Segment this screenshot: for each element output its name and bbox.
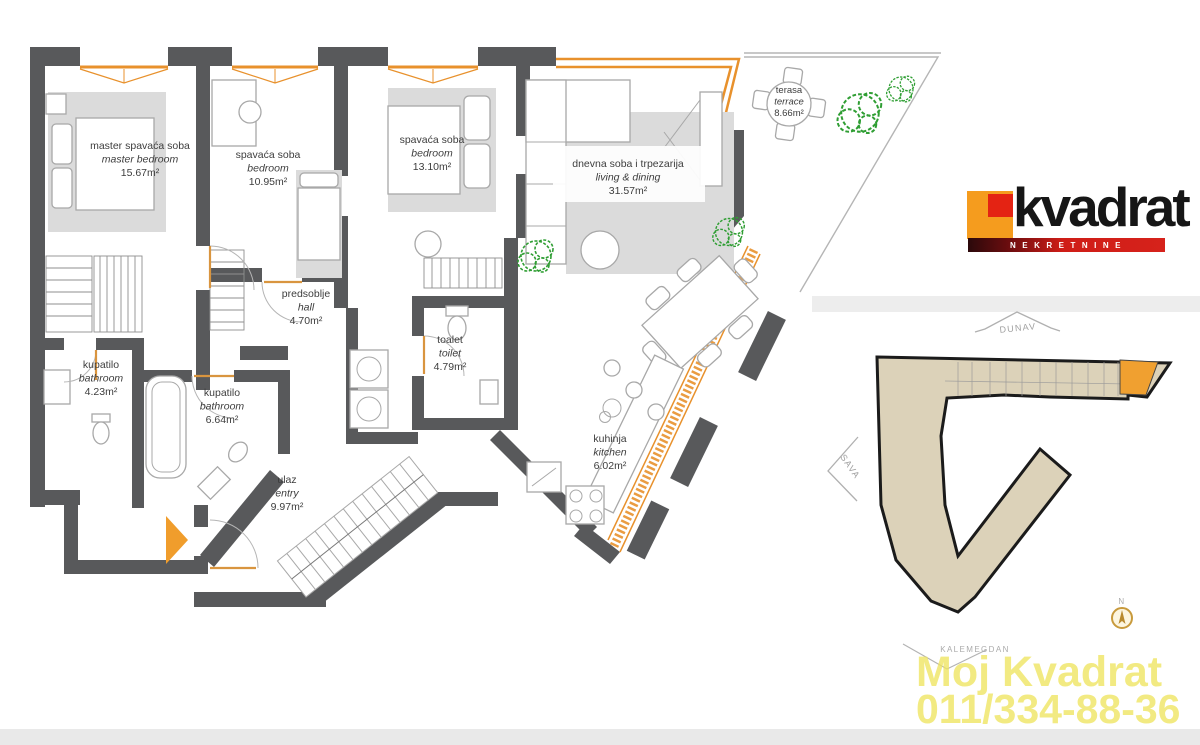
room-area: 15.67m² [121, 167, 160, 179]
background-band-top [812, 296, 1200, 312]
room-name-sr: master spavaća soba [90, 140, 190, 152]
room-area: 8.66m² [774, 108, 804, 119]
room-name-sr: spavaća soba [236, 149, 301, 161]
room-label-bathroom-2: kupatilo bathroom 6.64m² [200, 387, 245, 426]
room-label-terrace: terasa terrace 8.66m² [774, 85, 804, 119]
room-area: 13.10m² [413, 161, 452, 173]
room-area: 4.23m² [85, 386, 118, 398]
room-area: 6.64m² [206, 414, 239, 426]
room-area: 4.70m² [290, 315, 323, 327]
room-label-hall: predsoblje hall 4.70m² [282, 288, 331, 327]
sava-label: SAVA [838, 452, 862, 480]
master-closet [46, 256, 142, 332]
room-label-toilet: toalet toilet 4.79m² [434, 334, 467, 373]
room-area: 31.57m² [609, 185, 648, 197]
building-footprint [877, 357, 1170, 612]
room-name-en: bathroom [79, 373, 124, 385]
site-plan: DUNAV SAVA KALEMEGDAN N [828, 312, 1170, 669]
room-area: 9.97m² [271, 501, 304, 513]
furniture [44, 63, 830, 524]
room-area: 4.79m² [434, 361, 467, 373]
room-name-en: kitchen [593, 447, 626, 459]
sava-direction: SAVA [828, 437, 862, 501]
compass-n-label: N [1118, 597, 1125, 606]
room-name-sr: kupatilo [204, 387, 240, 399]
logo-tagline-bar: NEKRETNINE [968, 238, 1165, 252]
plant-icon [838, 93, 882, 133]
plant-icon [887, 76, 915, 102]
dunav-label: DUNAV [999, 321, 1037, 335]
room-name-en: living & dining [596, 172, 661, 184]
room-name-sr: kuhinja [593, 433, 626, 445]
room-area: 6.02m² [594, 460, 627, 472]
watermark-line2: 011/334-88-36 [916, 686, 1180, 732]
logo-brand-text: kvadrat [1013, 180, 1188, 235]
compass-icon: N [1112, 597, 1132, 628]
dunav-direction: DUNAV [975, 312, 1060, 335]
room-name-en: entry [275, 488, 299, 500]
room-name-sr: predsoblje [282, 288, 331, 300]
room-name-sr: kupatilo [83, 359, 119, 371]
room-name-en: bedroom [411, 148, 453, 160]
room-name-en: master bedroom [102, 154, 179, 166]
room-name-en: terrace [774, 97, 804, 108]
apartment-floor-plan: master spavaća soba master bedroom 15.67… [30, 47, 941, 607]
room-name-sr: spavaća soba [400, 134, 465, 146]
bedroom2-furniture [388, 88, 502, 288]
room-name-en: bathroom [200, 401, 245, 413]
room-name-sr: ulaz [277, 474, 296, 486]
room-label-bathroom-1: kupatilo bathroom 4.23m² [79, 359, 124, 398]
logo-tagline-text: NEKRETNINE [1010, 241, 1127, 250]
room-name-en: bedroom [247, 163, 289, 175]
room-name-en: toilet [439, 348, 462, 360]
room-name-sr: toalet [437, 334, 463, 346]
room-name-sr: terasa [776, 85, 803, 96]
plan-canvas: master spavaća soba master bedroom 15.67… [0, 0, 1200, 745]
floor-plan-page: master spavaća soba master bedroom 15.67… [0, 0, 1200, 745]
room-name-en: hall [298, 302, 315, 314]
entrance-arrow-icon [166, 516, 188, 564]
room-label-bedroom-1: spavaća soba bedroom 10.95m² [236, 149, 301, 188]
room-label-kitchen: kuhinja kitchen 6.02m² [593, 433, 626, 472]
logo-red-square [988, 194, 1013, 217]
room-area: 10.95m² [249, 176, 288, 188]
room-name-sr: dnevna soba i trpezarija [572, 158, 684, 170]
watermark: Moj Kvadrat 011/334-88-36 [916, 648, 1180, 732]
kvadrat-logo: kvadrat NEKRETNINE [965, 186, 1177, 258]
